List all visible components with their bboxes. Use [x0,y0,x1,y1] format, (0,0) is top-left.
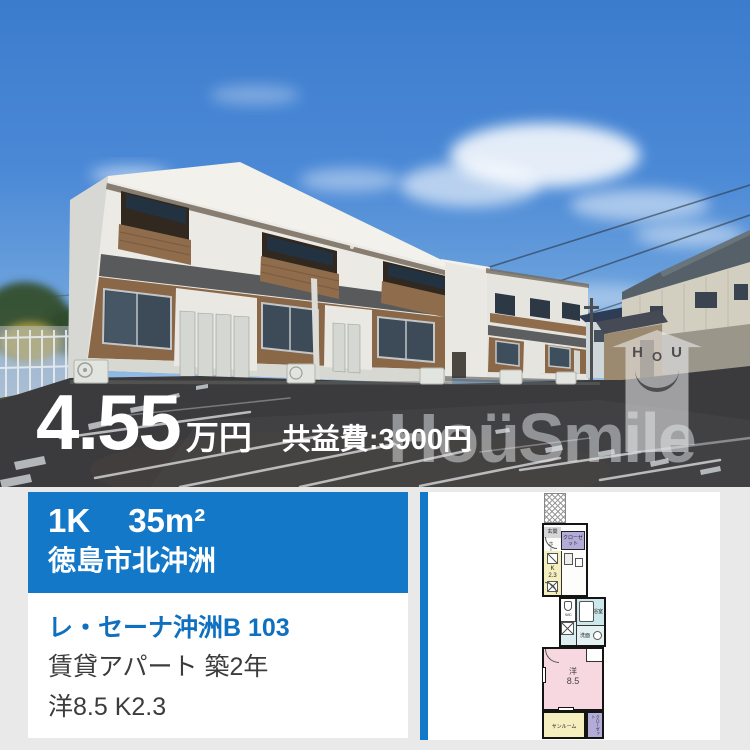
bathtub-symbol [579,601,594,622]
bath-label: 浴室 [593,608,603,615]
window-mark-left [542,667,546,683]
listing-card: HOU HoüSmile 4.55 万円 共益費:3900円 1K35m² 徳島… [0,0,750,750]
maintenance-fee: 共益費:3900円 [282,416,472,458]
accent-bar [420,492,428,740]
entry-hall-kitchen-block: 玄関 クローゼット ホール K 2.3 [542,523,588,597]
kitchen-size: 2.3 [544,573,561,579]
main-room: 洋 8.5 [542,647,604,711]
washer-symbol [561,622,574,635]
sunroom-label: サンルーム [544,723,584,730]
sunroom: サンルーム [542,711,586,739]
room-info: 洋8.5 K2.3 [48,687,408,727]
bathroom: 浴室 [576,599,604,625]
wc-room: WC [561,599,576,622]
property-name-link[interactable]: レ・セーナ沖洲B 103 [48,609,408,647]
room-size: 8.5 [544,676,602,686]
wc-label: WC [561,612,576,617]
floor-area: 35m² [128,502,205,539]
closet-upper: クローゼット [561,531,585,550]
bath-block: WC 浴室 洗面 [559,597,606,647]
washroom: 洗面 [576,625,604,645]
sink-symbol [593,631,602,640]
smile-icon [635,368,679,392]
shoebox-symbol [564,553,573,565]
entry-porch [544,493,566,523]
layout-size-line: 1K35m² [48,501,408,541]
location: 徳島市北沖洲 [48,543,408,579]
summary-box: 1K35m² 徳島市北沖洲 [28,492,408,593]
layout-type: 1K [48,502,90,539]
price-overlay: 4.55 万円 共益費:3900円 [36,383,472,461]
room-door-arc [545,649,559,663]
housmile-icon-letters: HOU [612,344,702,364]
room-notch [586,649,602,662]
utility-pole [590,298,593,382]
fridge-symbol [547,553,558,564]
toilet-symbol [564,601,572,611]
detail-card: レ・セーナ沖洲B 103 賃貸アパート 築2年 洋8.5 K2.3 [28,593,408,738]
rent-price: 4.55 [36,383,180,461]
kitchen-label: K [544,566,561,572]
building-info: 賃貸アパート 築2年 [48,647,408,687]
rent-price-unit: 万円 [186,411,252,459]
closet-lower: クローゼット [586,711,604,739]
fixture-symbol [575,558,583,567]
floorplan-panel: 玄関 クローゼット ホール K 2.3 WC [428,492,720,740]
washroom-label: 洗面 [580,632,590,639]
closet-lower-label: クローゼット [591,715,600,737]
floorplan: 玄関 クローゼット ホール K 2.3 WC [542,493,606,739]
property-photo: HOU HoüSmile 4.55 万円 共益費:3900円 [0,0,750,487]
